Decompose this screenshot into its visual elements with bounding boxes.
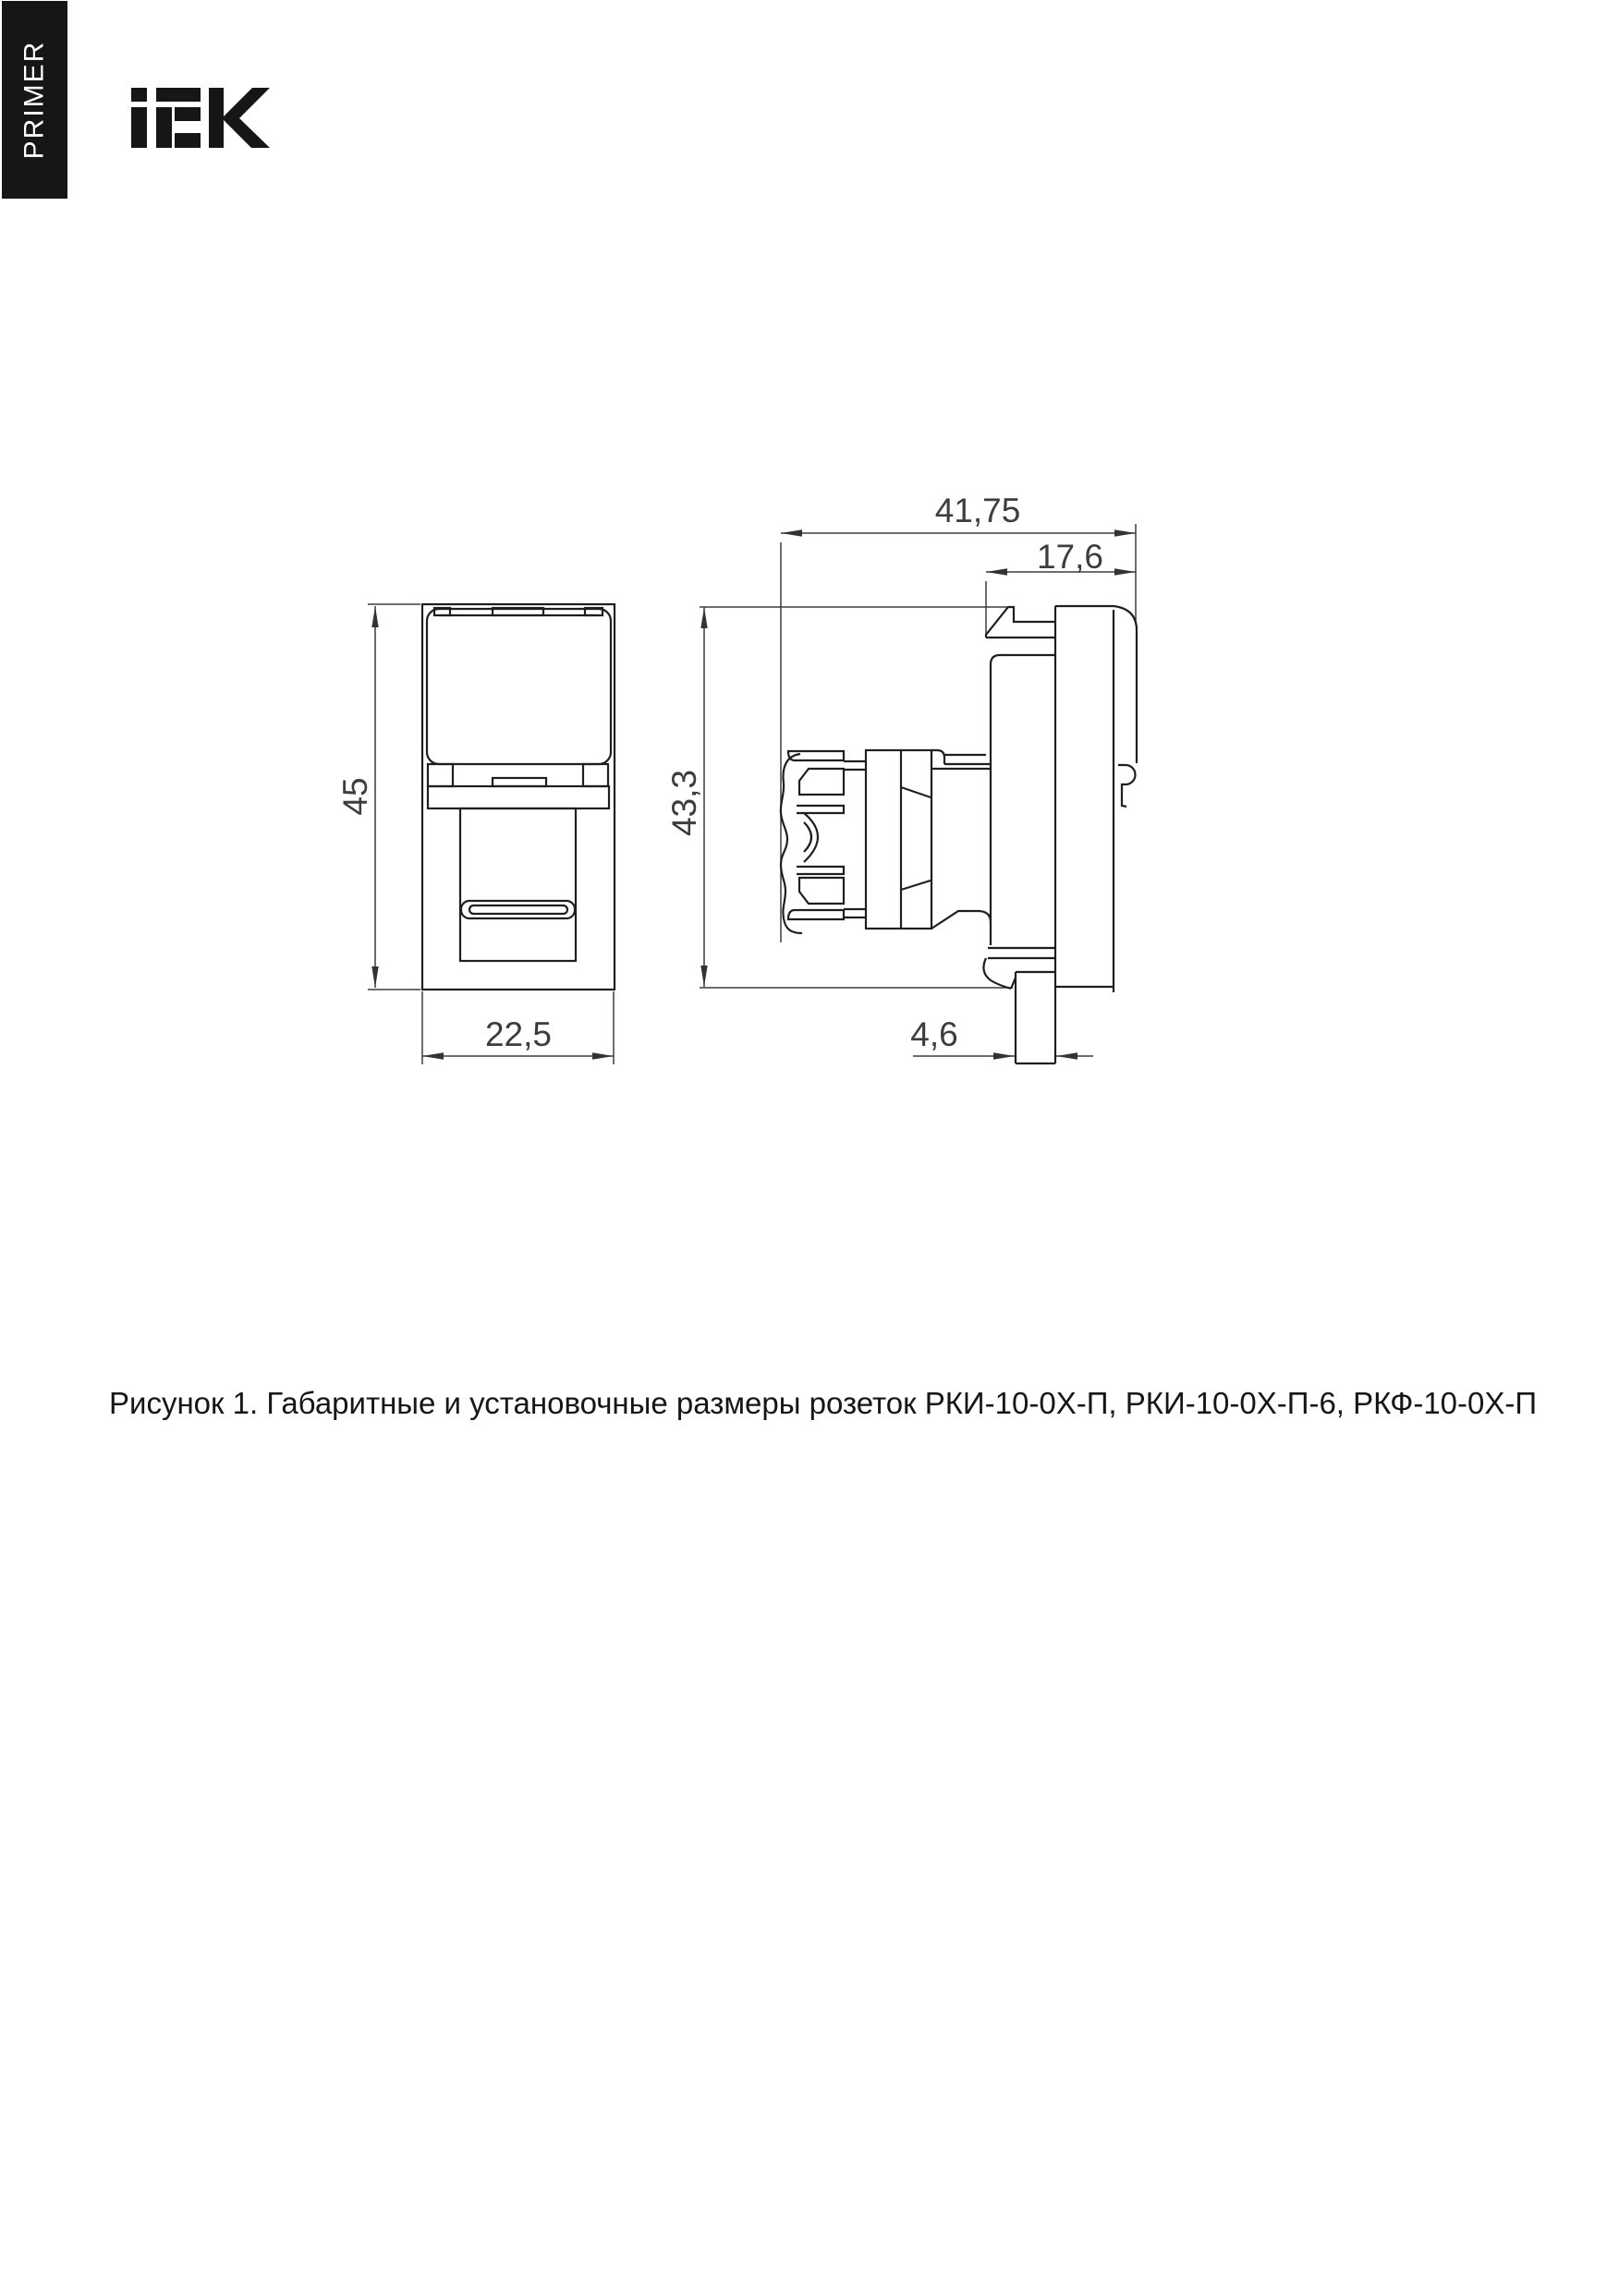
clip-bottom-block [799,878,844,904]
body-bottom-taper [931,911,991,929]
side-socket-block [866,750,931,929]
clip-top-block [799,769,844,795]
clip-tongue-inner [804,822,811,852]
dim-label-overall-depth: 41,75 [918,492,1038,529]
iek-logo-glyphs [128,81,270,148]
clip-bottom-bar [788,910,844,919]
hinge-step-left [428,764,453,786]
dim-label-lug-width: 4,6 [874,1016,994,1053]
dim-label-side-height: 43,3 [666,743,703,863]
logo-e-top-bar [156,88,201,102]
primer-corner-tab: PRIMER [2,1,67,199]
iek-logo [128,81,270,148]
logo-i-dot [131,88,147,102]
side-view-outline [781,606,1137,1063]
latch-slot-inner [469,905,567,914]
logo-i-stem [131,107,147,148]
frame-bottom-clip [983,958,1011,989]
side-view-dimensions [700,524,1136,1056]
frame-slab [991,655,1055,945]
logo-k-stem [209,88,224,148]
frame-top-clip [986,607,1055,638]
hinge-center-tab [493,778,546,786]
clip-mid-bar-top [797,806,844,813]
faceplate-side-hook [1118,765,1136,807]
clip-top-bar [788,751,844,760]
primer-tab-label: PRIMER [19,41,51,160]
logo-e-bottom-bar [175,133,201,148]
dim-label-front-height: 45 [337,736,374,856]
figure-caption: Рисунок 1. Габаритные и установочные раз… [109,1386,1588,1421]
dim-label-front-depth: 17,6 [1010,539,1130,576]
hinge-band [428,786,609,808]
logo-k-arms [224,88,270,148]
faceplate-top-edge [1055,606,1137,763]
front-faceplate [422,604,615,990]
front-dust-flap [427,609,611,764]
latch-slot-outer [461,901,575,918]
front-socket-block [460,808,576,961]
clip-mid-bar-bottom [797,867,844,874]
logo-e-mid-bar [175,107,201,121]
front-view-outline [422,604,615,990]
hinge-step-right [583,764,608,786]
body-step-corner [931,750,944,764]
dim-label-front-width: 22,5 [458,1016,578,1053]
logo-e-left-col [156,107,172,148]
